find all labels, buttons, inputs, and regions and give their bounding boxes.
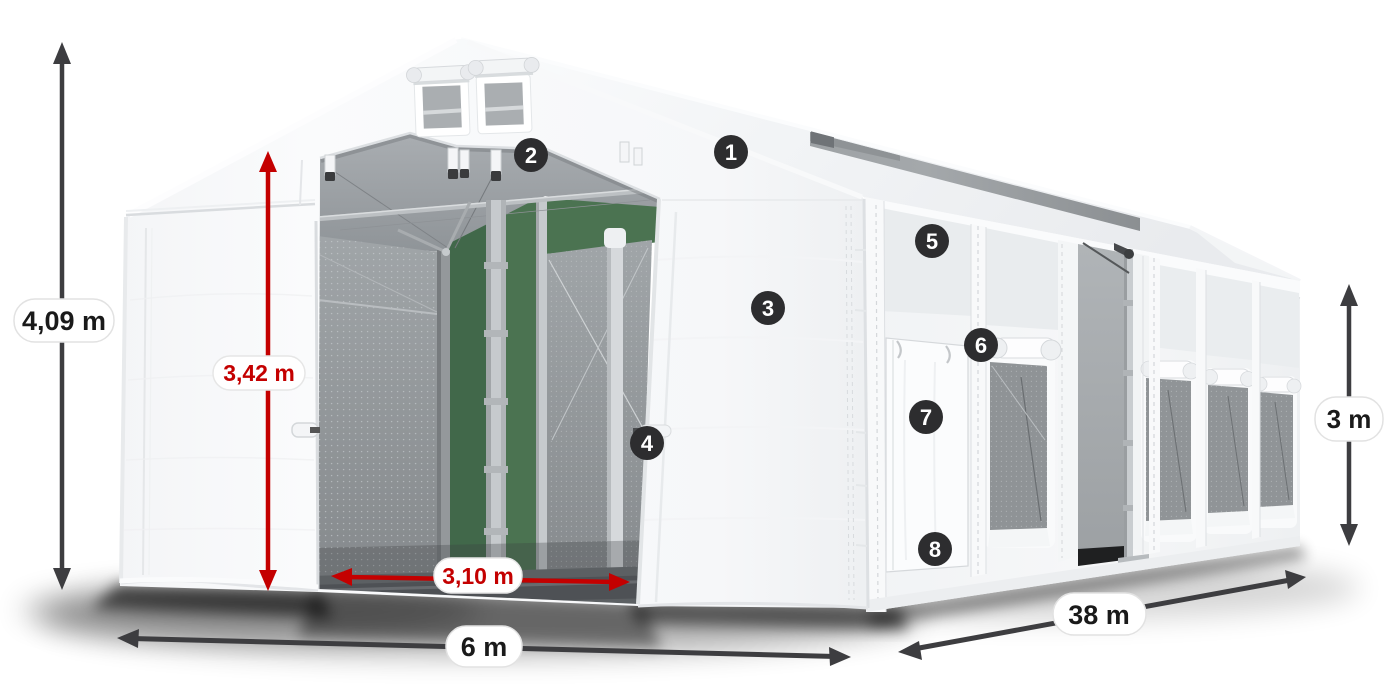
svg-text:38 m: 38 m — [1068, 600, 1130, 630]
svg-text:5: 5 — [926, 229, 938, 254]
svg-text:3,42 m: 3,42 m — [223, 360, 295, 386]
svg-text:3,10 m: 3,10 m — [442, 563, 514, 589]
svg-text:4: 4 — [641, 431, 654, 456]
svg-text:6: 6 — [975, 333, 987, 358]
svg-text:3 m: 3 m — [1327, 404, 1372, 434]
svg-text:7: 7 — [920, 405, 932, 430]
svg-text:3: 3 — [762, 296, 774, 321]
svg-text:8: 8 — [929, 537, 941, 562]
svg-text:2: 2 — [525, 143, 537, 168]
svg-text:6 m: 6 m — [461, 632, 508, 662]
svg-text:4,09 m: 4,09 m — [22, 306, 106, 336]
svg-text:1: 1 — [725, 140, 737, 165]
